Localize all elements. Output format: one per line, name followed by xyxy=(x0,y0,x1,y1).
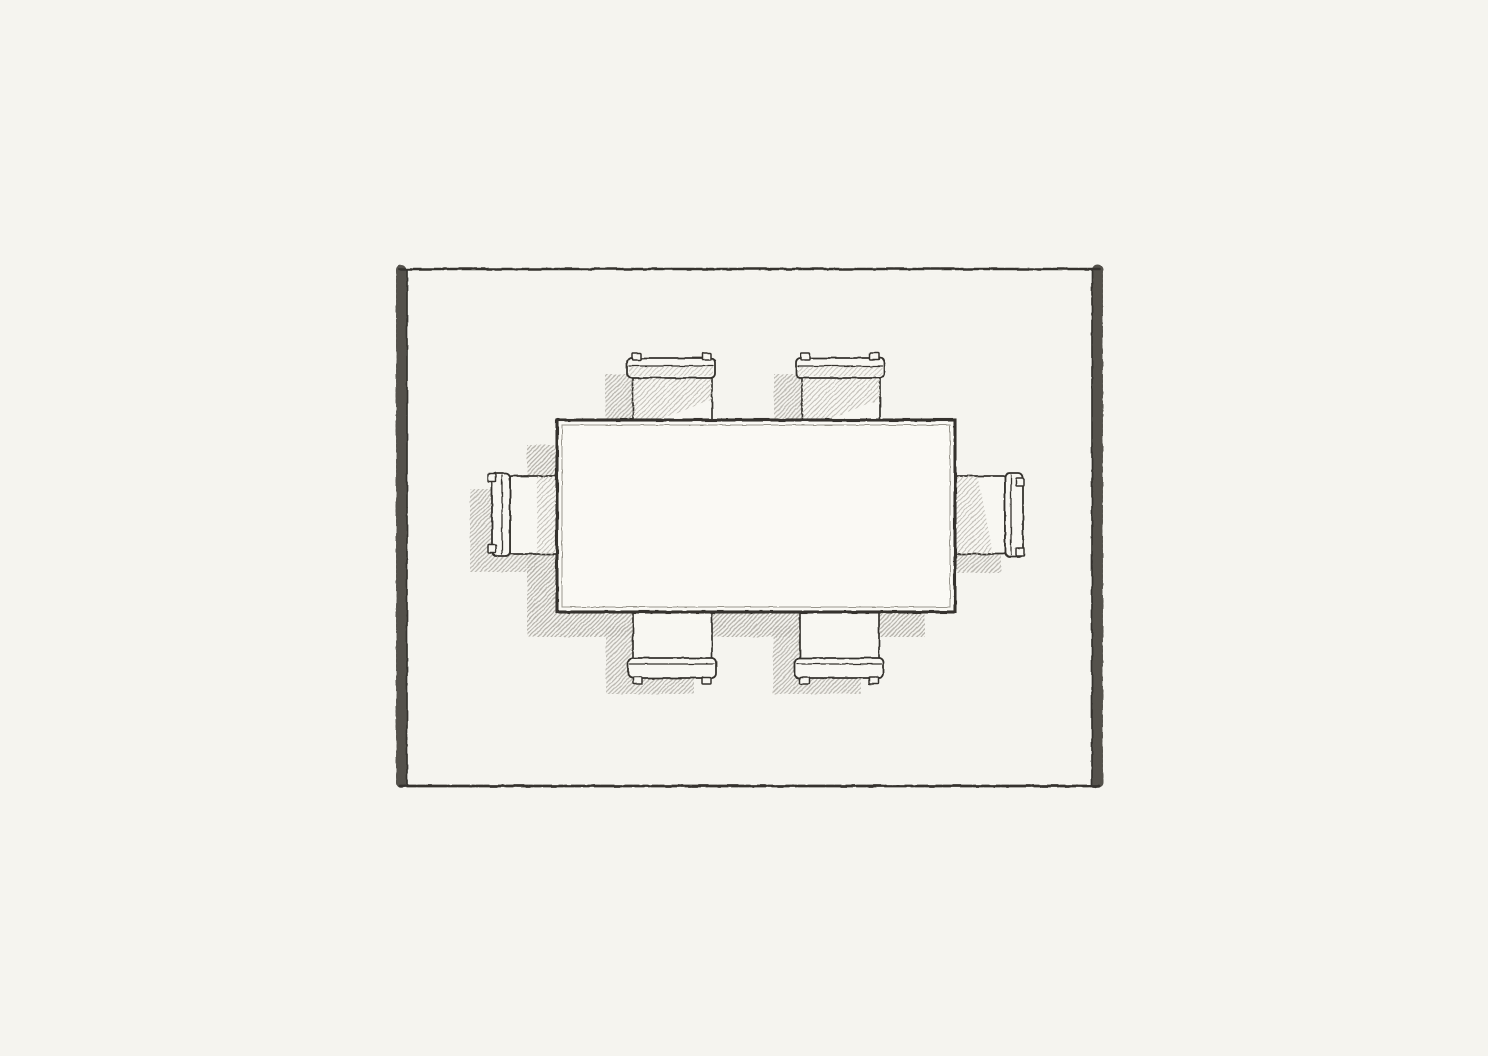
chair-bottom-right-finial-2 xyxy=(869,677,878,684)
chair-left-finial-2 xyxy=(488,545,496,553)
chair-bottom-right-backrest xyxy=(795,658,883,678)
chair-bottom-left-finial-2 xyxy=(702,677,711,684)
chair-top-right-finial-2 xyxy=(870,353,879,360)
chair-top-left-backrest-shading xyxy=(629,367,713,376)
chair-bottom-left xyxy=(628,610,716,684)
chair-bottom-right-finial-1 xyxy=(800,677,809,684)
chair-right-finial-1 xyxy=(1016,478,1024,486)
chair-top-right-backrest-shading xyxy=(798,367,882,376)
table-top-surface xyxy=(557,420,955,612)
chair-top-left-finial-2 xyxy=(702,353,711,360)
dining-table xyxy=(557,420,955,612)
floor-plan-figure xyxy=(0,0,1488,1056)
chair-top-right xyxy=(796,353,884,422)
chair-top-left xyxy=(627,353,715,422)
chair-left-finial-1 xyxy=(488,474,496,482)
chair-top-right-finial-1 xyxy=(801,353,810,360)
chair-bottom-left-seat xyxy=(633,610,712,660)
chair-bottom-left-finial-1 xyxy=(633,677,642,684)
chair-left-backrest xyxy=(492,473,510,556)
chair-right xyxy=(951,473,1024,557)
chair-bottom-left-backrest xyxy=(628,658,716,678)
scene xyxy=(400,269,1099,786)
chair-left xyxy=(488,473,559,556)
chair-right-finial-2 xyxy=(1016,548,1024,556)
sketch-svg xyxy=(0,0,1488,1056)
chair-bottom-right xyxy=(795,610,883,684)
chair-top-left-finial-1 xyxy=(632,353,641,360)
chair-bottom-right-seat xyxy=(800,610,879,660)
